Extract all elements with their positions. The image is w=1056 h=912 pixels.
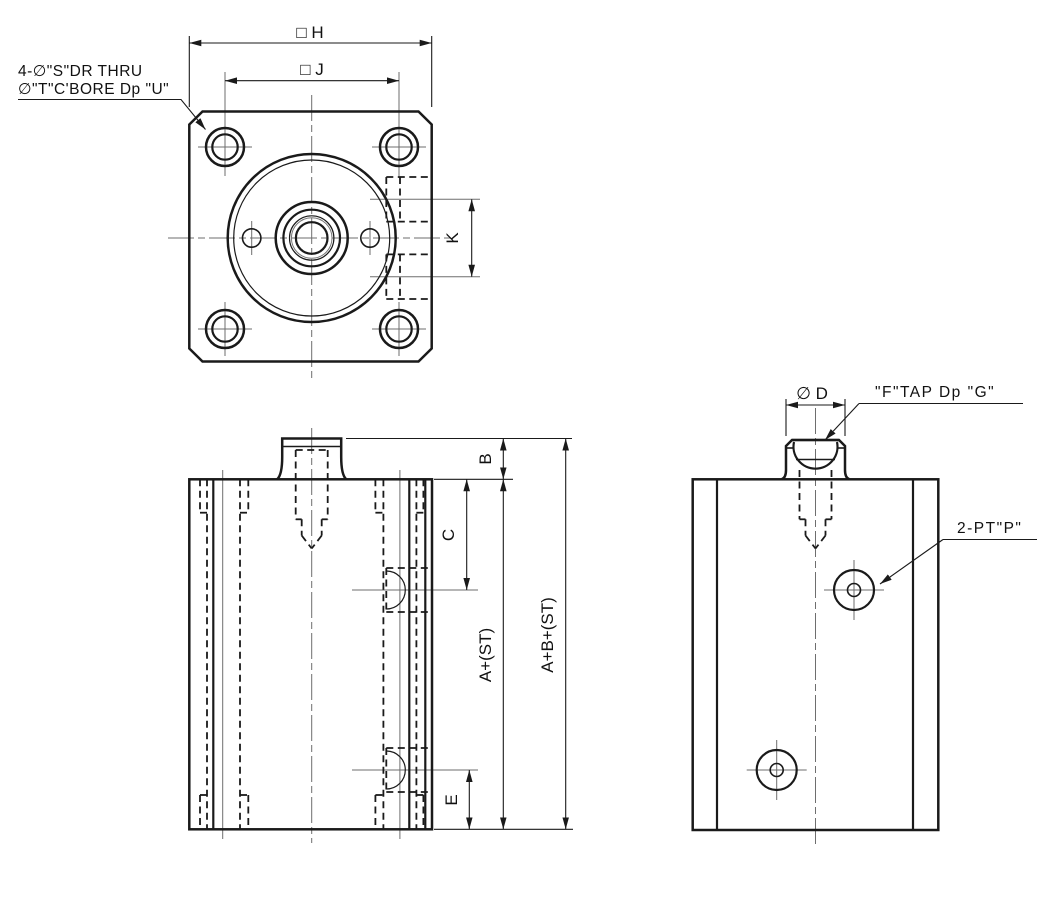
dim-port-spacing: K (443, 199, 472, 276)
end-view-centerlines (747, 408, 884, 845)
dim-label-B: B (476, 453, 495, 464)
drawing-canvas: □ H □ J K 4-∅"S"DR THRU ∅"T"C'BORE Dp "U… (0, 0, 1056, 912)
mounting-hole-note-line1: 4-∅"S"DR THRU (18, 63, 143, 80)
dim-port-to-bottom: E (442, 770, 469, 829)
side-view-body-outline (189, 479, 432, 829)
dim-body-length: A+(ST) (476, 479, 503, 829)
dim-label-J: □ J (300, 60, 324, 79)
end-view: ∅ D "F"TAP Dp "G" 2-PT"P" (693, 384, 1037, 845)
dim-label-C: C (439, 529, 458, 541)
dim-label-D: ∅ D (796, 384, 828, 403)
dim-label-A-B-ST: A+B+(ST) (538, 597, 557, 673)
front-view: □ H □ J K 4-∅"S"DR THRU ∅"T"C'BORE Dp "U… (18, 23, 480, 382)
technical-drawing: □ H □ J K 4-∅"S"DR THRU ∅"T"C'BORE Dp "U… (0, 0, 1056, 912)
port-note: 2-PT"P" (957, 520, 1022, 537)
mounting-hole-note: 4-∅"S"DR THRU ∅"T"C'BORE Dp "U" (18, 63, 206, 130)
rod-tap-leader (825, 404, 859, 441)
dim-bolt-spacing: □ J (225, 60, 399, 81)
side-view: B C A+(ST) A+B+(ST) E (189, 428, 573, 843)
side-view-hidden-lines (200, 450, 432, 829)
mounting-hole-leader (18, 100, 206, 130)
dim-boss-height: B (476, 439, 503, 480)
rod-tap-callout: "F"TAP Dp "G" (825, 384, 1023, 440)
mounting-hole-note-line2: ∅"T"C'BORE Dp "U" (18, 81, 169, 98)
dim-label-H: □ H (296, 23, 323, 42)
rod-tap-note: "F"TAP Dp "G" (875, 384, 995, 401)
port-leader (880, 540, 943, 585)
dim-label-K: K (443, 232, 462, 244)
dim-total-length: A+B+(ST) (538, 439, 566, 830)
side-view-centerlines (223, 428, 478, 843)
dim-label-E: E (442, 794, 461, 805)
dim-top-to-port: C (439, 479, 467, 590)
dim-label-A-ST: A+(ST) (476, 628, 495, 682)
port-callout: 2-PT"P" (880, 520, 1037, 584)
